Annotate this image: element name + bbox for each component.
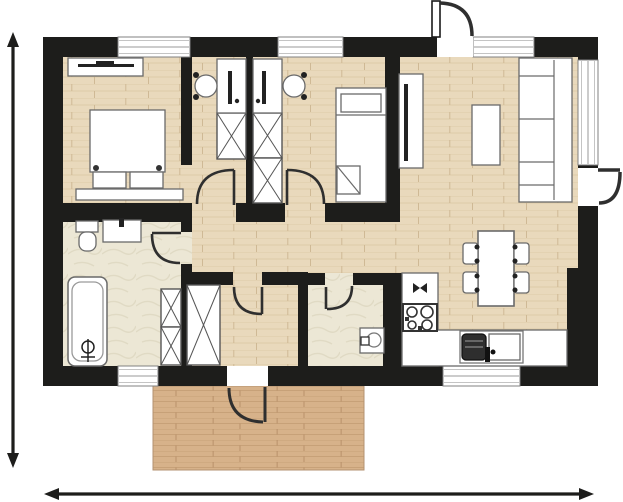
wardrobe-nook2 (253, 113, 282, 203)
wardrobe-nook1 (217, 113, 246, 159)
dining-chairs-part (513, 245, 518, 250)
toilet-part (76, 221, 98, 232)
stove (403, 304, 437, 331)
kitchen-sink-part (485, 347, 490, 362)
ext-wall-left (43, 37, 63, 386)
wc-basin (360, 328, 384, 353)
dining-chairs-part (475, 259, 480, 264)
wall-wc-north-b (353, 273, 383, 285)
dining-chairs-part (513, 288, 518, 293)
entry-door-gap (437, 37, 473, 57)
dining-table (478, 231, 514, 306)
coffee-table-part (472, 105, 500, 165)
desk-1 (217, 59, 246, 113)
floor-plan-stage (0, 0, 623, 502)
wall-bed2-south (325, 203, 400, 222)
dresser-bed1 (68, 58, 143, 76)
wc-basin-part (361, 337, 369, 345)
tv-board (399, 74, 423, 168)
double-bed-part (130, 172, 163, 188)
stove-part (405, 317, 409, 321)
ext-corner-block (567, 268, 598, 386)
window-kitchen-south (443, 366, 520, 386)
dim-line-left (7, 32, 19, 468)
wall-wc-north-a (308, 273, 325, 285)
terrace-deck (153, 386, 364, 470)
double-bed-part (76, 189, 183, 200)
coffee-table (472, 105, 500, 165)
right-door-gap (578, 168, 598, 206)
window-living-east (578, 60, 598, 165)
dim-line-bottom (44, 488, 594, 500)
stove-part (418, 326, 422, 330)
double-bed-part (93, 165, 99, 171)
dining-chairs-part (475, 288, 480, 293)
terrace-door-gap (227, 366, 268, 386)
wall-bath-east-a (181, 222, 192, 232)
dining-chairs-part (475, 245, 480, 250)
single-bed-part (341, 94, 381, 112)
kitchen-sink-part (489, 334, 520, 360)
wall-mid-south (236, 203, 285, 222)
dresser-bed1-part (78, 64, 134, 67)
bath-vanity (103, 218, 141, 242)
desk-1-part (228, 71, 232, 104)
dim-line-bottom-arrowhead-1 (44, 488, 59, 500)
window-bed1-north (118, 37, 190, 57)
dining-chairs-part (475, 274, 480, 279)
bathtub (68, 277, 107, 366)
sofa (519, 58, 572, 202)
kitchen-sink-part (491, 350, 496, 355)
desk-chair-1-part (193, 72, 199, 78)
desk-1-part (235, 99, 239, 103)
dining-chairs-part (513, 274, 518, 279)
tv-board-part (404, 84, 408, 161)
toilet-part (79, 232, 96, 251)
desk-chair-2-part (283, 75, 305, 97)
wall-between-nooks (246, 57, 253, 203)
sofa-part (519, 58, 572, 202)
right-exterior-door (598, 170, 620, 203)
tv-board-part (399, 74, 423, 168)
window-bed2-north (278, 37, 343, 57)
dim-line-bottom-arrowhead-2 (579, 488, 594, 500)
window-bath-south (118, 366, 158, 386)
desk-2 (253, 59, 282, 113)
entry-door-leaf (432, 1, 440, 37)
wall-bed1-nook (181, 57, 192, 165)
kitchen-sink (460, 331, 523, 363)
wardrobe-bathroom (161, 289, 181, 365)
desk-chair-1-part (195, 75, 217, 97)
window-living-north (473, 37, 534, 57)
toilet (76, 221, 98, 251)
desk-chair-1-part (193, 94, 199, 100)
dining-chairs-part (513, 259, 518, 264)
dresser-bed1-part (96, 61, 114, 64)
double-bed-part (93, 172, 126, 188)
wall-wc-west (298, 273, 308, 366)
wall-wc-east (383, 273, 402, 366)
wall-hall-south-w (181, 272, 233, 285)
wall-bed2-living (385, 57, 400, 222)
dining-table-part (478, 231, 514, 306)
bath-vanity-part (119, 218, 124, 227)
wardrobe-hallway (187, 285, 220, 365)
dim-line-left-arrowhead-2 (7, 453, 19, 468)
dim-line-left-arrowhead-1 (7, 32, 19, 47)
desk-chair-2-part (301, 72, 307, 78)
single-bed (336, 88, 386, 202)
desk-2-part (262, 71, 266, 104)
desk-2-part (256, 99, 260, 103)
desk-chair-2-part (301, 94, 307, 100)
desk-2-part (253, 59, 282, 113)
entry-door-swing-arc (440, 3, 472, 36)
wall-bed1-south (63, 203, 192, 222)
double-bed-part (156, 165, 162, 171)
right-exterior-door-swing-arc (599, 172, 620, 203)
entry-door (432, 1, 472, 37)
floor-plan (0, 0, 623, 502)
double-bed-part (90, 110, 165, 172)
